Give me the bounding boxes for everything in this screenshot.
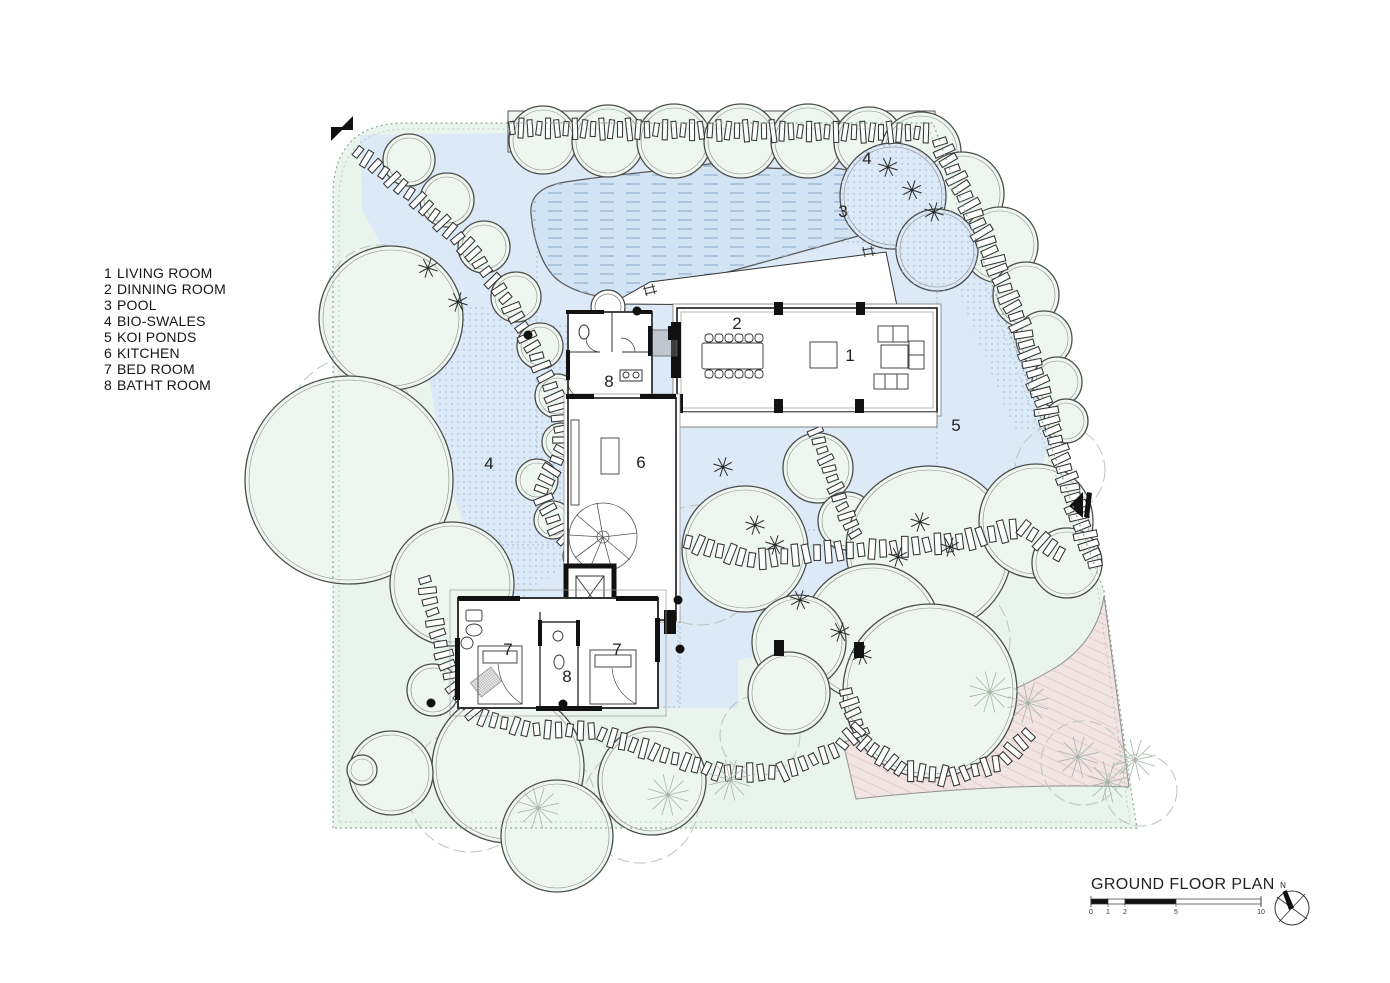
legend-item-number: 5 [104, 329, 117, 345]
drawing-sheet: 34452168877 GROUND FLOOR PLAN 012510 N 1… [0, 0, 1390, 983]
stepping-stone [747, 763, 754, 782]
stepping-stone [857, 543, 865, 557]
legend-item-label: KITCHEN [117, 345, 180, 361]
grid-dot [427, 699, 436, 708]
room-label: 8 [604, 372, 613, 391]
sink [553, 631, 563, 641]
room-label: 5 [951, 416, 960, 435]
site-plan-svg: 34452168877 GROUND FLOOR PLAN 012510 N [0, 0, 1390, 983]
legend-item-label: KOI PONDS [117, 329, 197, 345]
stepping-stone [518, 118, 524, 138]
stepping-stone [554, 120, 561, 138]
legend-item-number: 6 [104, 345, 117, 361]
scale-tick-label: 10 [1257, 909, 1265, 916]
stepping-stone [847, 542, 854, 558]
grid-dot [559, 700, 568, 709]
scale-segment [1125, 899, 1176, 904]
room-label: 4 [484, 454, 493, 473]
chair [466, 624, 482, 636]
stepping-stone [814, 545, 821, 561]
side-table [461, 637, 473, 649]
stepping-stone [577, 721, 584, 740]
legend-item: 6KITCHEN [104, 345, 226, 361]
tree [319, 246, 463, 390]
stepping-stone [879, 540, 886, 557]
stepping-stone [680, 123, 686, 137]
stepping-stone [833, 121, 839, 142]
stepping-stone [533, 723, 540, 736]
stepping-stone [851, 125, 857, 140]
stepping-stone [791, 544, 800, 566]
kitchen-island [601, 438, 619, 474]
legend-item-number: 4 [104, 313, 117, 329]
stepping-stone [860, 121, 867, 143]
scale-bar: 012510 [1089, 896, 1265, 916]
room-label: 2 [732, 314, 741, 333]
stepping-stone [707, 123, 713, 138]
room-label: 7 [503, 640, 512, 659]
stepping-stone [544, 720, 552, 739]
stepping-stone [671, 121, 677, 138]
legend-item: 8BATHT ROOM [104, 377, 226, 393]
grid-post [854, 642, 864, 658]
scale-segment [1091, 899, 1108, 904]
grid-dot [524, 331, 533, 340]
main-pavilion [657, 302, 941, 427]
grid-post [774, 640, 784, 656]
stepping-stone [815, 123, 822, 141]
stepping-stone [779, 121, 785, 141]
stepping-stone [734, 123, 739, 138]
stepping-stone [908, 761, 914, 782]
drawing-title: GROUND FLOOR PLAN [1091, 876, 1275, 893]
legend-item-number: 2 [104, 281, 117, 297]
tree [704, 104, 778, 178]
stepping-stone [955, 534, 963, 550]
kitchen-counter [571, 420, 579, 505]
north-label: N [1280, 881, 1286, 890]
stepping-stone [752, 121, 759, 140]
bedroom-wing [450, 590, 666, 716]
legend-item-label: BED ROOM [117, 361, 195, 377]
legend-item: 3POOL [104, 297, 226, 313]
grid-dot [676, 645, 685, 654]
stepping-stone [806, 121, 811, 141]
legend-item-label: DINNING ROOM [117, 281, 226, 297]
scale-tick-label: 2 [1123, 909, 1127, 916]
legend-item-label: LIVING ROOM [117, 265, 213, 281]
legend-item-label: BIO-SWALES [117, 313, 206, 329]
stepping-stone [905, 125, 911, 141]
stepping-stone [929, 767, 936, 782]
stepping-stone [824, 125, 830, 139]
stepping-stone [500, 717, 508, 730]
stepping-stone [545, 118, 550, 139]
pond-walkway [676, 412, 937, 427]
grid-dot [674, 596, 683, 605]
tree [347, 755, 377, 785]
scale-segment [1108, 899, 1125, 904]
stepping-stone [527, 120, 533, 137]
legend-item-number: 7 [104, 361, 117, 377]
stepping-stone [878, 125, 883, 140]
legend-item-number: 3 [104, 297, 117, 313]
stepping-stone [781, 549, 788, 564]
legend-item: 7BED ROOM [104, 361, 226, 377]
north-arrow-icon: N [1275, 881, 1309, 925]
scale-tick-label: 0 [1089, 909, 1093, 916]
tree [637, 104, 711, 178]
legend-item-label: BATHT ROOM [117, 377, 211, 393]
legend-item-label: POOL [117, 297, 157, 313]
legend-item-number: 1 [104, 265, 117, 281]
tree [572, 105, 644, 177]
stepping-stone [1009, 519, 1017, 539]
stepping-stone [911, 537, 920, 555]
stepping-stone [769, 765, 776, 779]
tree [509, 106, 577, 174]
legend-item: 2DINNING ROOM [104, 281, 226, 297]
stepping-stone [934, 533, 942, 555]
chair [466, 610, 482, 621]
section-marker-icon [331, 116, 353, 141]
room-label: 7 [612, 640, 621, 659]
stepping-stone [824, 540, 832, 563]
stepping-stone [797, 124, 804, 138]
title-block: GROUND FLOOR PLAN 012510 N [1089, 876, 1309, 925]
stepping-stone [644, 121, 650, 138]
tree [501, 780, 613, 892]
stepping-stone [923, 123, 929, 143]
tree-dots [896, 209, 978, 291]
scale-tick-label: 1 [1106, 909, 1110, 916]
stepping-stone [788, 123, 794, 140]
stepping-stone [555, 722, 561, 738]
stepping-stone [761, 123, 766, 139]
legend-item-number: 8 [104, 377, 117, 393]
stepping-stone [418, 587, 436, 595]
stepping-stone [896, 123, 902, 143]
stepping-stone [759, 548, 767, 570]
stepping-stone [747, 552, 756, 567]
stepping-stone [566, 723, 574, 737]
room-label: 4 [862, 149, 871, 168]
legend-item: 1LIVING ROOM [104, 265, 226, 281]
legend: 1LIVING ROOM2DINNING ROOM3POOL4BIO-SWALE… [104, 265, 226, 393]
tree [517, 323, 563, 369]
stepping-stone [868, 539, 876, 560]
legend-item: 5KOI PONDS [104, 329, 226, 345]
room-label: 8 [562, 667, 571, 686]
scale-tick-label: 5 [1174, 909, 1178, 916]
stepping-stone [588, 723, 595, 740]
room-label: 6 [636, 453, 645, 472]
grid-dot [633, 307, 642, 316]
room-label: 1 [845, 346, 854, 365]
scale-segment [1176, 899, 1261, 904]
room-label: 3 [838, 202, 847, 221]
stepping-stone [434, 640, 447, 648]
legend-item: 4BIO-SWALES [104, 313, 226, 329]
tree [748, 652, 830, 734]
